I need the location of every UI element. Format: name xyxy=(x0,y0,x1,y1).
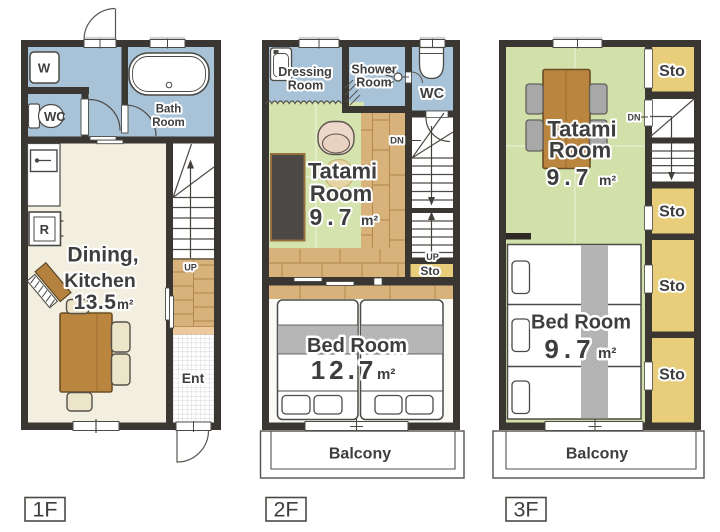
svg-text:m²: m² xyxy=(598,345,616,362)
svg-text:R: R xyxy=(40,222,50,237)
svg-text:Bath: Bath xyxy=(156,104,182,116)
svg-text:Dining,: Dining, xyxy=(67,244,138,267)
svg-text:2F: 2F xyxy=(273,498,298,522)
svg-text:Sto: Sto xyxy=(659,63,685,80)
svg-text:9.7: 9.7 xyxy=(310,204,357,230)
svg-text:12.7: 12.7 xyxy=(311,355,378,385)
svg-text:DN: DN xyxy=(628,113,641,123)
svg-text:Ent: Ent xyxy=(182,370,205,386)
svg-text:Balcony: Balcony xyxy=(566,446,628,463)
svg-text:W: W xyxy=(38,61,51,76)
svg-text:m²: m² xyxy=(361,212,378,228)
svg-text:Room: Room xyxy=(152,117,185,129)
svg-text:Sto: Sto xyxy=(420,264,439,278)
svg-text:Tatami: Tatami xyxy=(308,159,377,184)
svg-text:Dressing: Dressing xyxy=(278,65,332,79)
svg-text:WC: WC xyxy=(420,86,445,102)
svg-text:Balcony: Balcony xyxy=(329,446,391,463)
svg-text:Room: Room xyxy=(356,76,391,90)
svg-text:Room: Room xyxy=(310,181,372,206)
svg-text:Room: Room xyxy=(288,79,323,93)
svg-text:9.7: 9.7 xyxy=(544,334,595,364)
svg-text:Bed Room: Bed Room xyxy=(307,335,407,357)
svg-text:DN: DN xyxy=(390,136,404,147)
svg-text:Bed Room: Bed Room xyxy=(531,312,631,334)
svg-text:m²: m² xyxy=(117,297,134,312)
svg-text:UP: UP xyxy=(184,263,197,273)
svg-text:WC: WC xyxy=(44,109,66,124)
svg-text:1F: 1F xyxy=(32,498,57,522)
svg-text:Kitchen: Kitchen xyxy=(64,270,136,292)
svg-text:Sto: Sto xyxy=(659,367,685,384)
svg-text:UP: UP xyxy=(426,252,439,262)
svg-text:Sto: Sto xyxy=(659,278,685,295)
svg-text:Sto: Sto xyxy=(659,204,685,221)
svg-text:3F: 3F xyxy=(513,498,538,522)
svg-text:13.5: 13.5 xyxy=(74,291,117,314)
svg-text:Room: Room xyxy=(549,138,611,163)
svg-text:m²: m² xyxy=(599,172,616,188)
svg-text:9.7: 9.7 xyxy=(547,164,594,190)
svg-text:m²: m² xyxy=(377,366,395,383)
